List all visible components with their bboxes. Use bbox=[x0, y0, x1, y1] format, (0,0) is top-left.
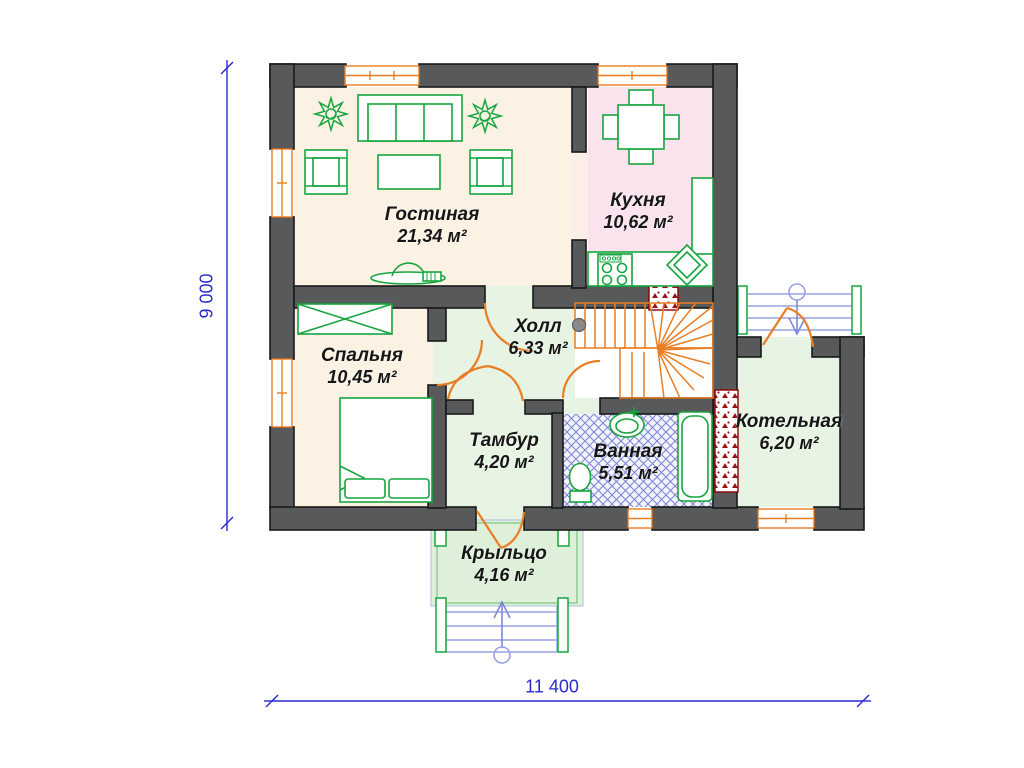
room-label-bedroom: Спальня 10,45 м² bbox=[321, 345, 403, 389]
dimension-line-height bbox=[221, 60, 233, 531]
dimension-height-label: 9 000 bbox=[197, 273, 218, 318]
window-icon bbox=[272, 149, 292, 217]
window-icon bbox=[272, 359, 292, 427]
room-label-living: Гостиная 21,34 м² bbox=[385, 204, 480, 248]
floor-plan-drawing bbox=[0, 0, 1024, 768]
stove-icon bbox=[598, 254, 632, 286]
coffee-table-icon bbox=[378, 155, 440, 189]
window-icon bbox=[628, 509, 652, 528]
steps-arrow-icon bbox=[494, 602, 510, 663]
room-label-hall: Холл 6,33 м² bbox=[508, 316, 567, 360]
window-icon bbox=[345, 66, 419, 85]
room-label-boiler: Котельная 6,20 м² bbox=[736, 411, 842, 455]
room-label-bathroom: Ванная 5,51 м² bbox=[594, 441, 663, 485]
stair-start-dot bbox=[573, 319, 586, 332]
floor-plan: Гостиная 21,34 м² Кухня 10,62 м² Спальня… bbox=[0, 0, 1024, 768]
window-icon bbox=[598, 66, 667, 85]
entry-steps bbox=[738, 284, 861, 334]
wardrobe-icon bbox=[298, 304, 392, 334]
sofa-icon bbox=[358, 95, 462, 141]
armchair-icon bbox=[470, 150, 512, 194]
room-label-porch: Крыльцо 4,16 м² bbox=[461, 543, 547, 587]
dimension-width-label: 11 400 bbox=[525, 677, 579, 698]
room-label-kitchen: Кухня 10,62 м² bbox=[603, 190, 672, 234]
armchair-icon bbox=[305, 150, 347, 194]
room-label-tambour: Тамбур 4,20 м² bbox=[469, 430, 539, 474]
bed-icon bbox=[340, 398, 432, 502]
bathtub-icon bbox=[678, 412, 712, 501]
toilet-icon bbox=[570, 464, 592, 503]
window-icon bbox=[758, 509, 814, 528]
